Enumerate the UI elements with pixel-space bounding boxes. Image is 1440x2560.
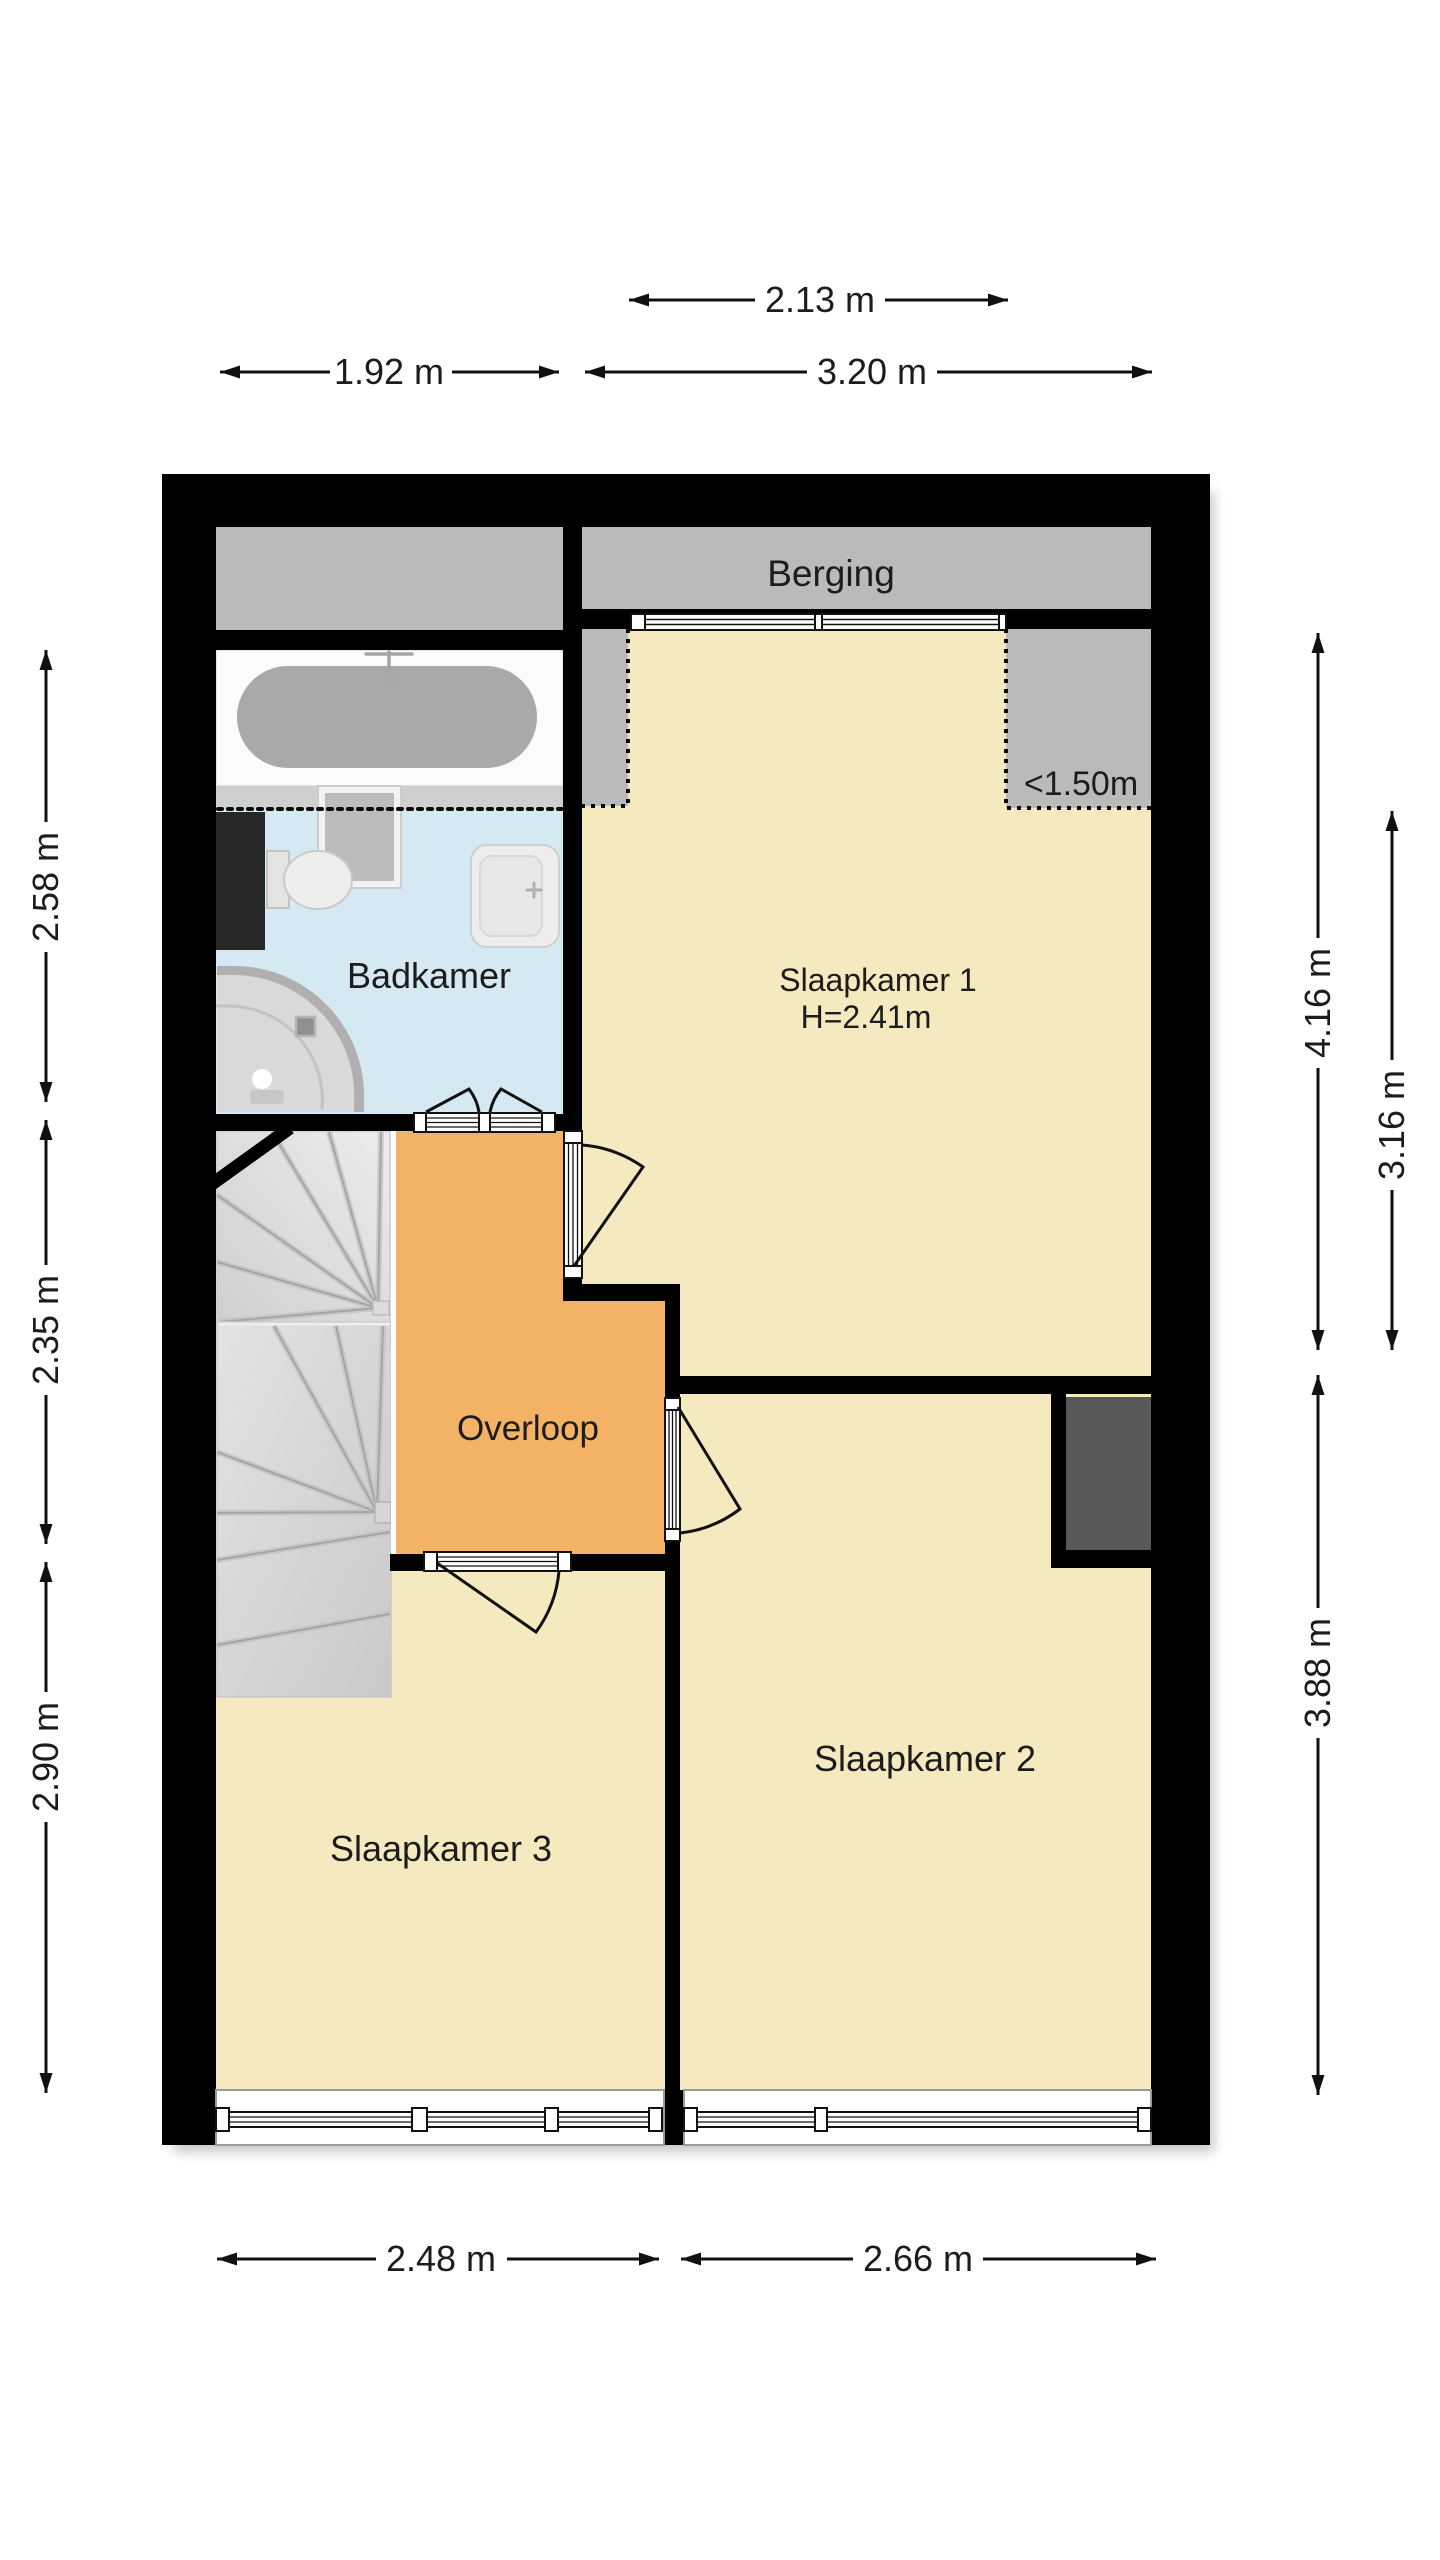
svg-text:2.35 m: 2.35 m xyxy=(25,1275,66,1385)
svg-text:2.48 m: 2.48 m xyxy=(386,2238,496,2279)
svg-text:Badkamer: Badkamer xyxy=(347,955,511,996)
svg-text:3.88 m: 3.88 m xyxy=(1297,1618,1338,1728)
svg-text:3.20 m: 3.20 m xyxy=(817,351,927,392)
svg-text:2.58 m: 2.58 m xyxy=(25,832,66,942)
svg-text:<1.50m: <1.50m xyxy=(1024,765,1138,803)
svg-text:3.16 m: 3.16 m xyxy=(1371,1070,1412,1180)
svg-text:Slaapkamer 1: Slaapkamer 1 xyxy=(779,962,976,998)
svg-text:Slaapkamer 3: Slaapkamer 3 xyxy=(330,1828,552,1869)
svg-text:Overloop: Overloop xyxy=(457,1409,599,1448)
svg-text:2.90 m: 2.90 m xyxy=(25,1702,66,1812)
svg-text:2.66 m: 2.66 m xyxy=(863,2238,973,2279)
svg-text:4.16 m: 4.16 m xyxy=(1297,948,1338,1058)
svg-text:2.13 m: 2.13 m xyxy=(765,279,875,320)
svg-text:Berging: Berging xyxy=(767,553,895,594)
svg-text:H=2.41m: H=2.41m xyxy=(801,999,932,1035)
svg-text:Slaapkamer 2: Slaapkamer 2 xyxy=(814,1738,1036,1779)
svg-text:1.92 m: 1.92 m xyxy=(334,351,444,392)
